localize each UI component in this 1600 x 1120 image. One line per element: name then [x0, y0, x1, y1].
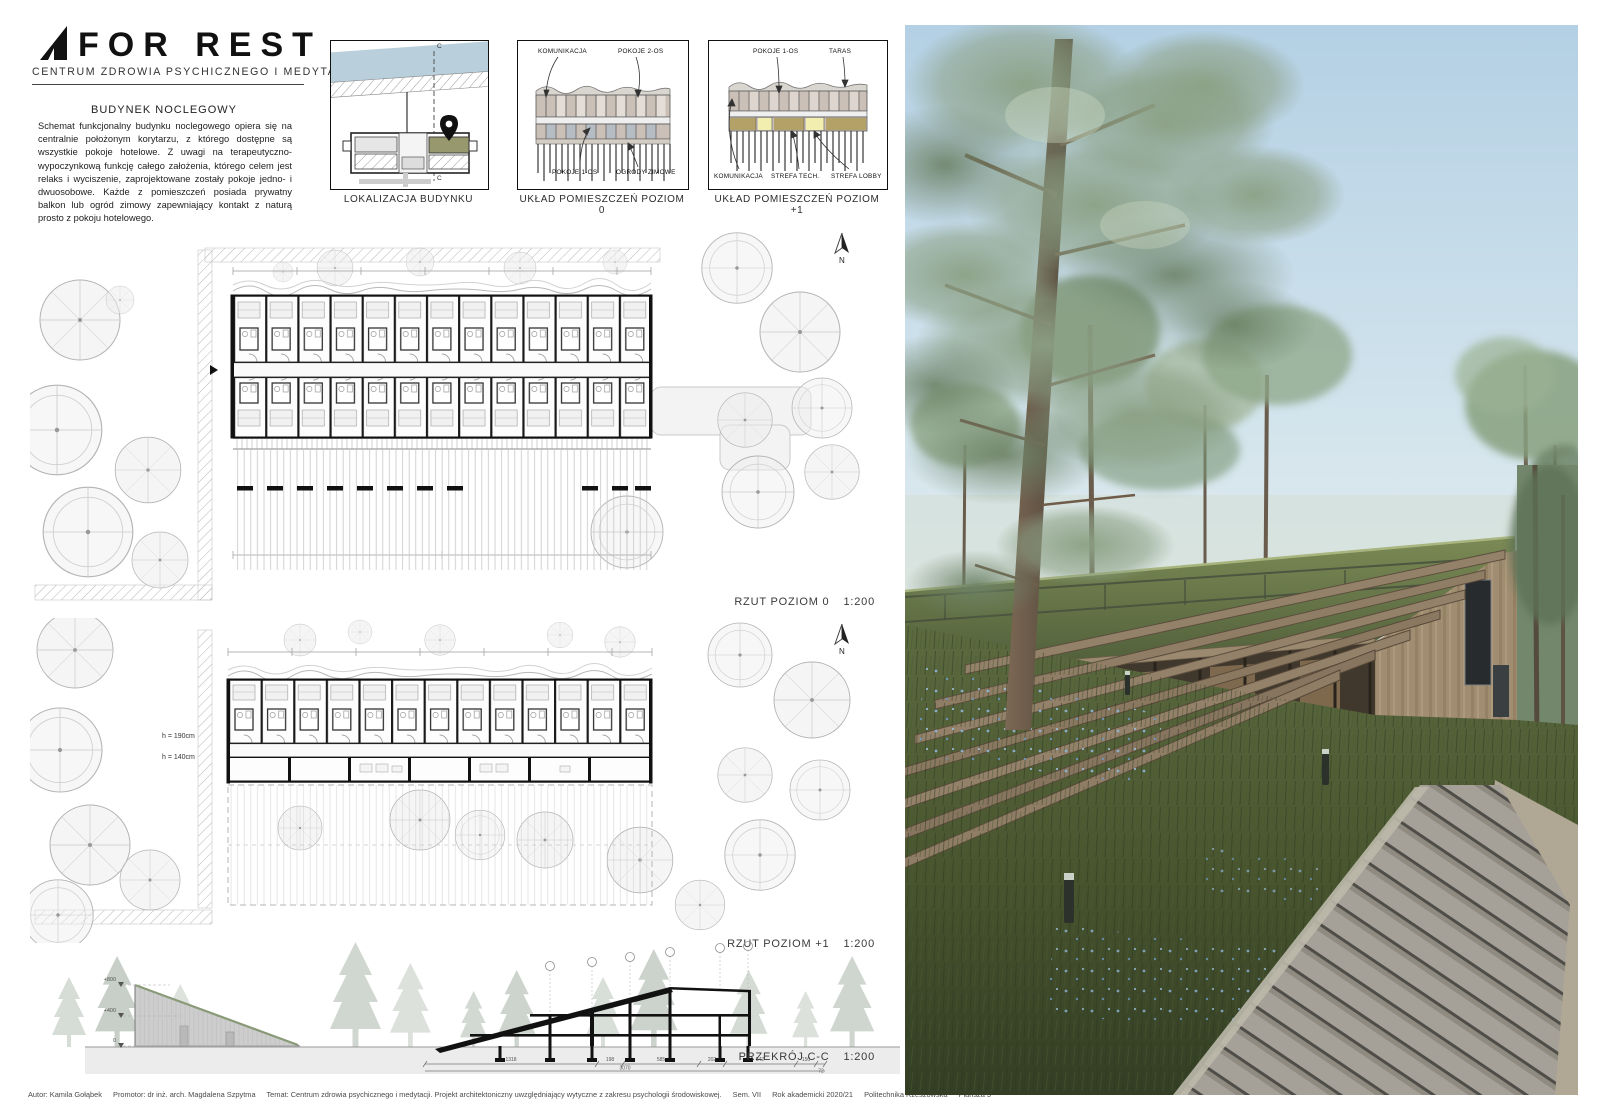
label-komunikacja: KOMUNIKACJA — [538, 48, 587, 55]
diagram-site-caption: LOKALIZACJA BUDYNKU — [330, 194, 487, 205]
svg-text:0: 0 — [113, 1038, 116, 1044]
rooms-1os-band — [729, 91, 867, 111]
corridor-band — [536, 117, 670, 124]
logo-subtitle: CENTRUM ZDROWIA PSYCHICZNEGO I MEDYTACJI — [32, 66, 304, 78]
section-cut-structure — [435, 942, 753, 1063]
plan1-canopy-wave — [228, 663, 652, 681]
entrance-arrow — [210, 365, 218, 375]
north-arrow-icon: N — [835, 233, 849, 265]
diagram-level0-scheme: KOMUNIKACJA POKOJE 2-OS POKOJE 1-OS OGRO… — [517, 40, 689, 190]
label-strefa-lobby: STREFA LOBBY — [831, 173, 882, 180]
svg-text:N: N — [839, 256, 845, 265]
plan-level0-scale: 1:200 — [843, 596, 875, 608]
plan0-building — [210, 295, 653, 439]
footer-promoter: Promotor: dr inż. arch. Magdalena Szpytm… — [113, 1090, 256, 1099]
section-building-elevation — [135, 985, 300, 1046]
plan1-building — [227, 679, 653, 784]
level0-scheme-drawing — [518, 41, 688, 189]
plan0-canopy-wave — [233, 278, 651, 296]
north-arrow-icon: N — [835, 624, 849, 656]
diagram-level1-caption: UKŁAD POMIESZCZEŃ POZIOM +1 — [708, 194, 886, 216]
label-pokoje-1os: POKOJE 1-OS — [552, 169, 597, 176]
plan-level0-label: RZUT POZIOM 01:200 — [690, 596, 875, 608]
rooms-1os-band — [536, 124, 670, 144]
svg-text:+800: +800 — [104, 977, 116, 983]
plan-level1-drawing: h = 190cm h = 140cm N — [30, 618, 880, 943]
diagram-level0-caption: UKŁAD POMIESZCZEŃ POZIOM 0 — [517, 194, 687, 216]
label-pokoje-2os: POKOJE 2-OS — [618, 48, 663, 55]
diagram-level1-scheme: POKOJE 1-OS TARAS KOMUNIKACJA STREFA TEC… — [708, 40, 888, 190]
plan0-balcony-deck — [233, 439, 651, 570]
diagram-site-location: C C — [330, 40, 489, 190]
footer-semester: Sem. VII — [733, 1090, 761, 1099]
label-strefa-tech: STREFA TECH. — [771, 173, 819, 180]
plan1-roof-projection — [228, 785, 652, 905]
render-art — [905, 25, 1578, 1095]
zones-band — [729, 117, 867, 131]
section-mark-bottom: C — [437, 175, 442, 182]
logo-title: FOR REST — [78, 26, 322, 65]
presentation-board: { "board": { "logo": { "title": "FOR RES… — [0, 0, 1600, 1120]
access-roads — [359, 173, 431, 187]
height-note-upper: h = 190cm — [162, 733, 195, 740]
beam-comb — [731, 131, 863, 171]
svg-text:3070: 3070 — [619, 1066, 630, 1072]
footer-author: Autor: Kamila Gołąbek — [28, 1090, 102, 1099]
corridor-band — [729, 111, 867, 117]
footer-subject: Temat: Centrum zdrowia psychicznego i me… — [266, 1090, 721, 1099]
label-pokoje-1os: POKOJE 1-OS — [753, 48, 798, 55]
intro-body: Schemat funkcjonalny budynku noclegowego… — [38, 120, 292, 226]
label-taras: TARAS — [829, 48, 851, 55]
level1-scheme-drawing — [709, 41, 887, 189]
svg-text:N: N — [839, 647, 845, 656]
svg-text:198: 198 — [606, 1057, 615, 1063]
height-note-lower: h = 140cm — [162, 754, 195, 761]
svg-text:+400: +400 — [104, 1008, 116, 1014]
logo: FOR REST — [30, 20, 315, 70]
section-label: PRZEKRÓJ C-C1:200 — [690, 1051, 875, 1063]
section-title: PRZEKRÓJ C-C — [739, 1051, 830, 1063]
logo-rule — [32, 84, 304, 85]
facade-window — [1465, 580, 1491, 685]
plan-level0-title: RZUT POZIOM 0 — [734, 596, 829, 608]
intro-heading: BUDYNEK NOCLEGOWY — [30, 104, 298, 116]
svg-text:1318: 1318 — [505, 1057, 516, 1063]
section-mark-top: C — [437, 43, 442, 50]
right-edge-forest — [1510, 465, 1578, 745]
label-komunikacja: KOMUNIKACJA — [714, 173, 763, 180]
footer-year: Rok akademicki 2020/21 — [772, 1090, 853, 1099]
facade-door — [1493, 665, 1509, 717]
section-scale: 1:200 — [843, 1051, 875, 1063]
rooms-2os-band — [536, 95, 670, 117]
logo-tree-icon — [40, 26, 70, 64]
svg-text:585: 585 — [657, 1057, 666, 1063]
building-footprint — [343, 133, 477, 173]
building-render-image — [905, 25, 1578, 1095]
plan-level0-drawing: N — [30, 225, 880, 610]
svg-text:72: 72 — [818, 1069, 824, 1075]
site-location-drawing — [331, 41, 488, 189]
water-and-beach-bands — [331, 41, 488, 98]
label-ogrody-zimowe: OGRODY ZIMOWE — [616, 169, 676, 176]
